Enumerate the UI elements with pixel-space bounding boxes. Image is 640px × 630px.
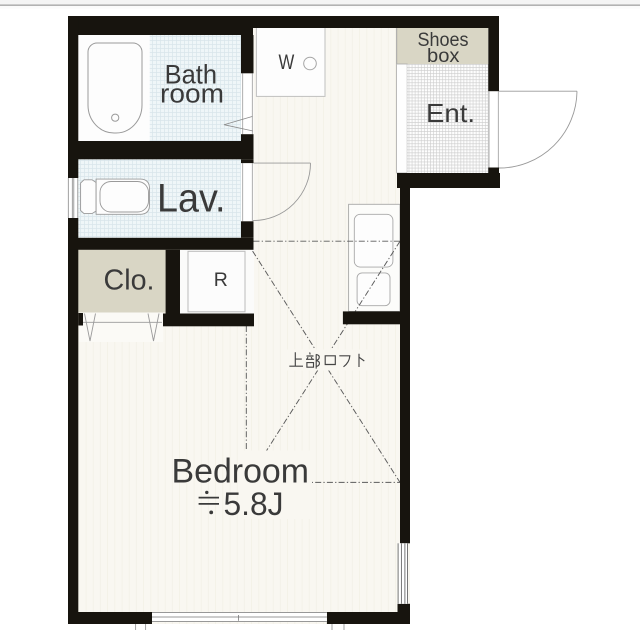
svg-text:room: room <box>160 79 224 109</box>
svg-text:R: R <box>214 269 228 291</box>
svg-text:Clo.: Clo. <box>104 264 155 296</box>
svg-text:Lav.: Lav. <box>157 177 226 221</box>
svg-text:Ent.: Ent. <box>426 98 475 128</box>
svg-text:5.8J: 5.8J <box>224 486 284 522</box>
svg-text:W: W <box>279 51 295 74</box>
svg-text:box: box <box>427 45 460 67</box>
svg-text:Bedroom: Bedroom <box>172 453 310 491</box>
